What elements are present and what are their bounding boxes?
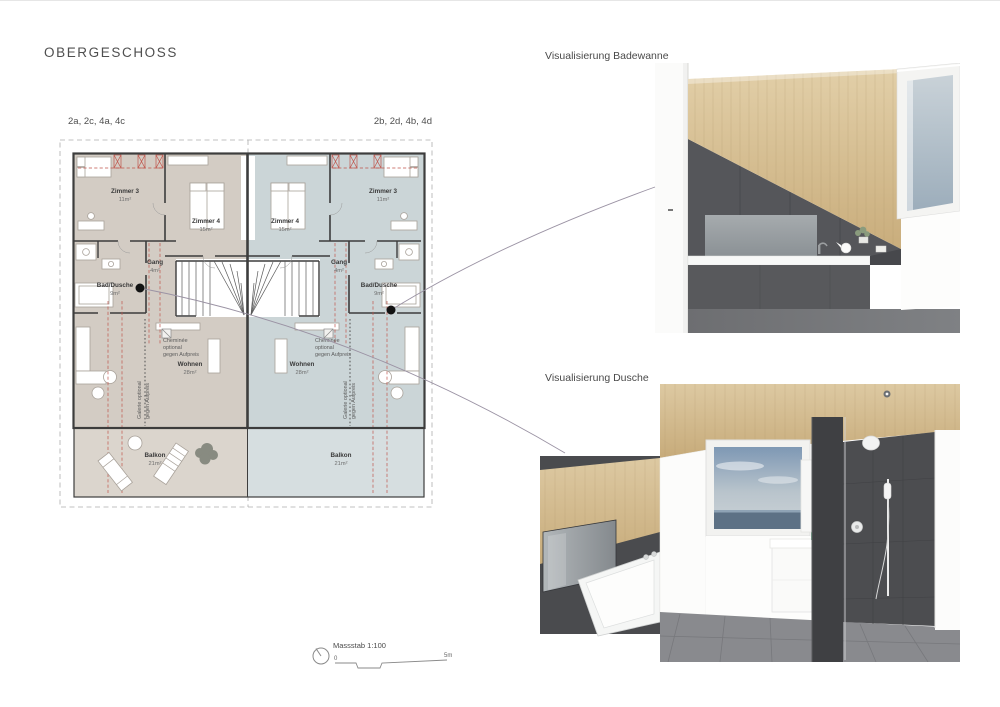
svg-text:9m²: 9m² [374, 291, 384, 297]
svg-text:gegen Aufpreis: gegen Aufpreis [163, 352, 199, 358]
svg-text:Wohnen: Wohnen [290, 361, 315, 368]
badewanne-window [897, 63, 960, 219]
svg-text:Bad/Dusche: Bad/Dusche [361, 282, 398, 289]
unit-fills [74, 154, 424, 497]
page-title: OBERGESCHOSS [44, 45, 178, 60]
dusche-window [706, 440, 810, 536]
scalebar-five: 5m [444, 653, 452, 659]
badewanne-cabinet [655, 63, 688, 333]
rain-shower-head [863, 436, 880, 450]
svg-text:4m²: 4m² [334, 268, 344, 274]
svg-text:gegen Aufpreis: gegen Aufpreis [315, 352, 351, 358]
svg-text:11m²: 11m² [377, 197, 390, 203]
dusche-right-wall [935, 430, 960, 630]
svg-text:21m²: 21m² [149, 461, 162, 467]
svg-text:Galerie optional: Galerie optional [137, 381, 143, 419]
svg-text:21m²: 21m² [335, 461, 348, 467]
dusche-left-section [540, 456, 660, 636]
svg-text:11m²: 11m² [119, 197, 132, 203]
floor-plan: Zimmer 3 11m² Zimmer 4 15m² Gang 4m² Bad… [58, 131, 438, 511]
svg-text:Zimmer 3: Zimmer 3 [111, 188, 139, 195]
unit-label-right: 2b, 2d, 4b, 4d [330, 116, 432, 127]
svg-text:15m²: 15m² [279, 227, 292, 233]
svg-text:Cheminée: Cheminée [163, 338, 188, 344]
render-badewanne [655, 63, 960, 333]
svg-text:Galerie optional: Galerie optional [343, 381, 349, 419]
svg-text:28m²: 28m² [184, 370, 197, 376]
viz-title-dusche: Visualisierung Dusche [545, 372, 649, 384]
svg-text:optional: optional [163, 345, 182, 351]
svg-text:Zimmer 3: Zimmer 3 [369, 188, 397, 195]
svg-text:Balkon: Balkon [145, 452, 166, 459]
page: { "page": { "title": "OBERGESCHOSS" }, "… [0, 0, 1000, 707]
svg-text:Zimmer 4: Zimmer 4 [192, 218, 220, 225]
svg-text:9m²: 9m² [110, 291, 120, 297]
viz-title-badewanne: Visualisierung Badewanne [545, 50, 669, 62]
svg-text:4m²: 4m² [150, 268, 160, 274]
scalebar: Massstab 1:100 0 5m [300, 636, 470, 681]
scalebar-label: Massstab 1:100 [333, 641, 386, 650]
svg-text:Balkon: Balkon [331, 452, 352, 459]
dusche-partition-wall [812, 417, 843, 662]
svg-text:Gang: Gang [147, 259, 163, 266]
north-icon [313, 648, 329, 664]
svg-text:28m²: 28m² [296, 370, 309, 376]
svg-text:Wohnen: Wohnen [178, 361, 203, 368]
badewanne-floor [688, 309, 960, 333]
svg-text:Zimmer 4: Zimmer 4 [271, 218, 299, 225]
scalebar-line [335, 660, 447, 668]
svg-text:Cheminée: Cheminée [315, 338, 340, 344]
unit-label-left: 2a, 2c, 4a, 4c [68, 116, 125, 127]
svg-text:Bad/Dusche: Bad/Dusche [97, 282, 134, 289]
svg-text:gegen Aufpreis: gegen Aufpreis [145, 383, 151, 419]
badewanne-tub [688, 249, 901, 309]
badewanne-right-wall [901, 205, 960, 310]
dusche-left-wall [660, 450, 706, 624]
svg-text:gegen Aufpreis: gegen Aufpreis [351, 383, 357, 419]
svg-text:optional: optional [315, 345, 334, 351]
svg-text:15m²: 15m² [200, 227, 213, 233]
scalebar-zero: 0 [334, 656, 338, 662]
svg-text:Gang: Gang [331, 259, 347, 266]
render-dusche [540, 384, 960, 662]
hand-shower [884, 483, 891, 499]
